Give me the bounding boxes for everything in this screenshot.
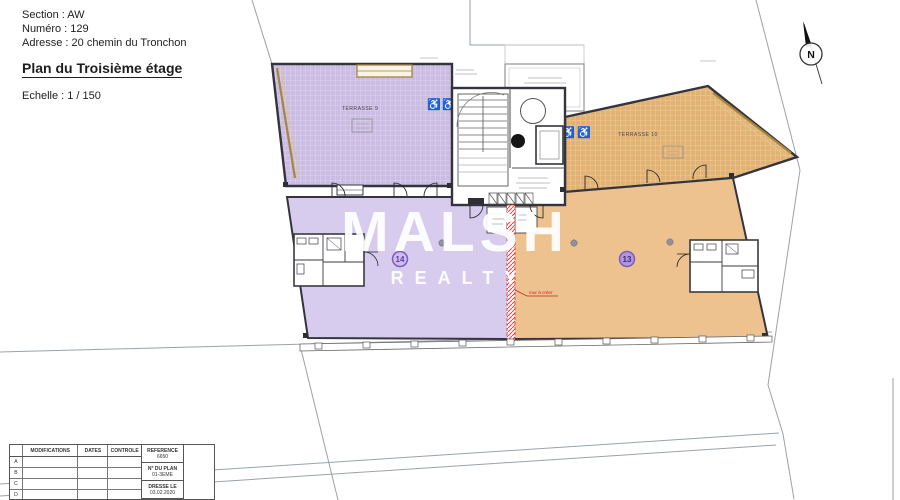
- wheelchair-icon: ♿: [577, 126, 591, 139]
- titleblock-header-controle: CONTROLE: [108, 445, 141, 456]
- reference-value: 6650: [157, 454, 168, 460]
- north-letter: N: [807, 49, 815, 61]
- numero-label: Numéro : 129: [22, 22, 186, 36]
- titleblock-header-modifications: MODIFICATIONS: [23, 445, 79, 456]
- titleblock-empty-column: [184, 445, 214, 499]
- section-label: Section : AW: [22, 8, 186, 22]
- terrasse-9-label: TERRASSE 9: [342, 106, 378, 112]
- terrasse-10-label: TERRASSE 10: [618, 132, 658, 138]
- issued-date-value: 03.02.2020: [150, 490, 175, 496]
- terrasse-9: TERRASSE 9 ♿ ♿: [272, 64, 456, 195]
- stair-elevator-core: [452, 88, 565, 205]
- titleblock-row: C: [10, 479, 141, 490]
- unit-13-badge: 13: [620, 252, 635, 267]
- titleblock-reference-column: REFERENCE 6650 N° DU PLAN 01-3EME DRESSE…: [142, 445, 184, 499]
- titleblock-row: B: [10, 468, 141, 479]
- floor-plan-page: N TERRASSE 9 ♿ ♿ TERRASSE 10 ♿ ♿: [0, 0, 900, 500]
- titleblock-header-row: MODIFICATIONS DATES CONTROLE: [10, 445, 141, 457]
- unit-13-number: 13: [623, 255, 632, 264]
- row-letter: D: [10, 490, 23, 500]
- titleblock-revision-table: MODIFICATIONS DATES CONTROLE A B C D E: [10, 445, 142, 499]
- reference-cell: REFERENCE 6650: [142, 445, 183, 463]
- adresse-label: Adresse : 20 chemin du Tronchon: [22, 36, 186, 50]
- wheelchair-icon: ♿: [427, 98, 441, 111]
- titleblock-row: A: [10, 457, 141, 468]
- north-arrow-icon: N: [800, 21, 822, 84]
- titleblock-row: D: [10, 490, 141, 500]
- echelle-label: Echelle : 1 / 150: [22, 90, 186, 102]
- page-title: Plan du Troisième étage: [22, 60, 182, 78]
- issued-date-cell: DRESSE LE 03.02.2020: [142, 481, 183, 499]
- titleblock: MODIFICATIONS DATES CONTROLE A B C D E R…: [9, 444, 215, 500]
- titleblock-letter-header: [10, 445, 23, 456]
- drawing-header: Section : AW Numéro : 129 Adresse : 20 c…: [22, 8, 186, 102]
- row-letter: B: [10, 468, 23, 478]
- titleblock-header-dates: DATES: [78, 445, 108, 456]
- plan-number-cell: N° DU PLAN 01-3EME: [142, 463, 183, 481]
- unit-14-number: 14: [396, 255, 405, 264]
- plan-number-value: 01-3EME: [152, 472, 173, 478]
- mur-a-creer-label: mur à créer: [529, 290, 553, 295]
- terrasse-10: TERRASSE 10 ♿ ♿: [561, 86, 797, 192]
- unit-14-badge: 14: [393, 252, 408, 267]
- row-letter: A: [10, 457, 23, 467]
- row-letter: C: [10, 479, 23, 489]
